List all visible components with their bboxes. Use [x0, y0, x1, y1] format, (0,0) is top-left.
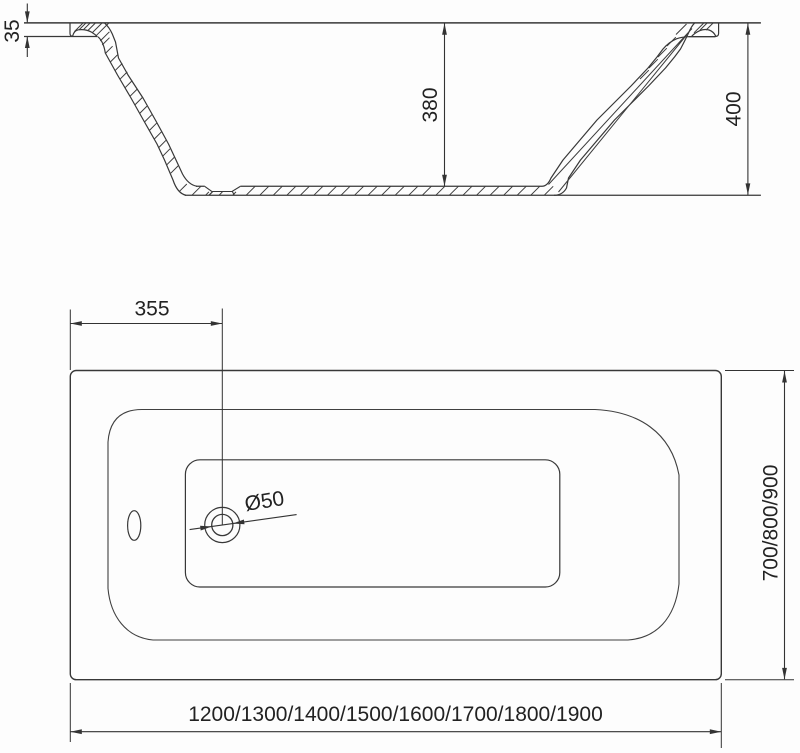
- svg-text:700/800/900: 700/800/900: [760, 465, 783, 582]
- svg-text:355: 355: [134, 298, 169, 321]
- svg-text:400: 400: [723, 91, 746, 126]
- svg-text:1200/1300/1400/1500/1600/1700/: 1200/1300/1400/1500/1600/1700/1800/1900: [188, 703, 603, 726]
- svg-text:35: 35: [1, 19, 24, 42]
- svg-text:380: 380: [419, 87, 442, 122]
- svg-text:Ø50: Ø50: [243, 487, 286, 516]
